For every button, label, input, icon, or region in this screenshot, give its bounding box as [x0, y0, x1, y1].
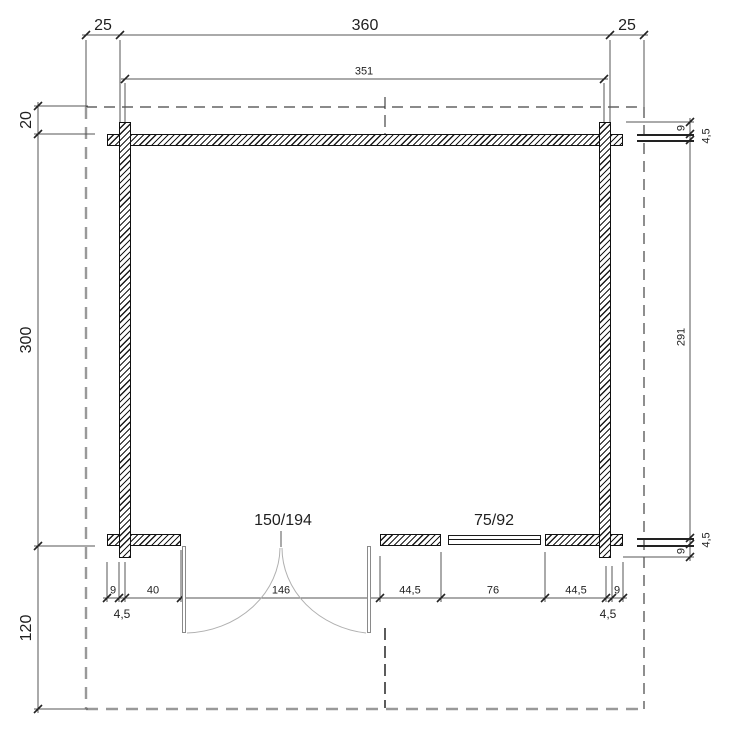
dim-right-top-half: 4,5 [702, 128, 713, 143]
roof-outline [86, 107, 644, 709]
dim-bottom-half-right: 4,5 [600, 608, 617, 620]
left-wall [119, 122, 131, 558]
dim-bottom-right-of-window: 44,5 [565, 586, 586, 597]
dim-bottom-window-width: 76 [487, 586, 499, 597]
dim-top-overhang-right: 25 [618, 18, 636, 34]
linework-layer [0, 0, 753, 751]
dim-bottom-log-right: 9 [614, 586, 620, 597]
back-wall-right-segment [545, 534, 623, 546]
dim-bottom-log-left: 9 [110, 586, 116, 597]
dim-right-bottom-half: 4,5 [702, 532, 713, 547]
dim-top-width-walls: 351 [355, 67, 373, 78]
dim-bottom-half-left: 4,5 [114, 608, 131, 620]
door-leaf-left [182, 546, 186, 633]
back-wall-mid-segment [380, 534, 441, 546]
dim-left-overhang-top: 20 [19, 111, 35, 129]
window-size-label: 75/92 [474, 513, 514, 529]
dim-top-overhang-left: 25 [94, 18, 112, 34]
front-wall [107, 134, 623, 146]
dim-left-depth-overall: 300 [19, 327, 35, 354]
window-glass-line [449, 539, 540, 540]
door-size-label: 150/194 [254, 513, 312, 529]
dim-left-overhang-bottom: 120 [19, 615, 35, 642]
window-symbol [448, 535, 541, 545]
dim-right-bottom-log: 9 [677, 548, 688, 554]
dim-bottom-left-of-window: 44,5 [399, 586, 420, 597]
dim-bottom-door-width: 146 [272, 586, 290, 597]
dim-right-depth-inner: 291 [677, 328, 688, 346]
dim-top-width-overall: 360 [352, 18, 379, 34]
right-wall [599, 122, 611, 558]
dim-bottom-seg-40: 40 [147, 586, 159, 597]
floor-plan-canvas: 25 360 25 351 20 300 120 9 4,5 291 4,5 9… [0, 0, 753, 751]
dim-right-top-log: 9 [677, 125, 688, 131]
door-leaf-right [367, 546, 371, 633]
